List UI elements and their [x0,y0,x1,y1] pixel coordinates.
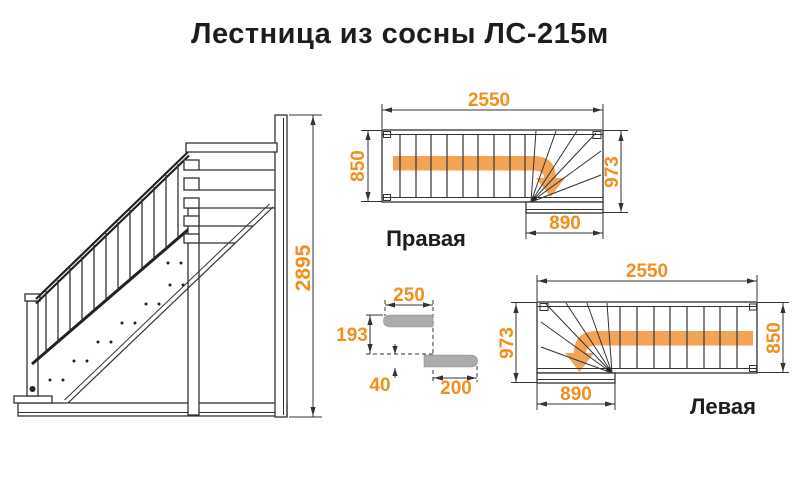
dim-tread-thickness-value: 40 [369,375,390,396]
dim-turn-width-value: 973 [602,156,623,188]
dim-length: 2550 [382,90,603,129]
upper-tread-section [384,315,434,327]
dim-length-value: 2550 [626,261,668,282]
dim-tread-run-value: 200 [440,378,472,399]
lower-tread-section [424,355,478,367]
dim-total-height: 2895 [289,115,322,417]
landing-outline [526,202,603,213]
side-elevation-view: 2895 [14,115,322,417]
dim-turn-width: 973 [497,303,537,384]
dim-turn-width-value: 973 [497,327,518,359]
drawing-canvas: 2895 [0,0,800,484]
dim-tread-depth-value: 250 [393,285,425,306]
dim-landing-width-value: 890 [560,384,592,405]
dim-tread-run: 200 [433,375,477,399]
floor-base [18,403,287,416]
dim-turn-width: 973 [602,131,628,213]
staircase-drawing-page: Лестница из сосны ЛС-215м [0,0,800,484]
dim-landing-width: 890 [537,383,615,410]
step-detail-view: 250 193 40 200 [336,285,477,399]
dim-flight-width-value: 850 [764,322,785,354]
newel-screw-dot [30,386,36,392]
dim-riser-height-value: 193 [336,325,368,346]
dim-riser-height: 193 [336,315,372,354]
dim-tread-depth: 250 [385,285,433,308]
stringer-screw-dots [49,262,185,382]
newel-post [27,301,38,396]
dim-length: 2550 [537,261,757,301]
dim-length-value: 2550 [468,90,510,111]
dim-flight-width: 850 [757,303,789,374]
dim-landing-width: 890 [526,213,603,239]
dim-flight-width: 850 [348,131,382,202]
newel-base-board [14,396,52,403]
dim-height-value: 2895 [292,244,315,291]
plan-left-label: Левая [690,394,756,419]
stringer-edge [32,222,197,364]
dim-tread-thickness: 40 [369,344,397,396]
plan-view-right: 2550 850 973 [348,90,628,251]
landing-outline [537,373,615,383]
upper-floor-post [275,115,287,417]
dim-landing-width-value: 890 [549,213,581,234]
apron-diagonal [65,204,274,403]
balusters [46,164,178,352]
plan-view-left: 2550 973 850 [497,261,789,419]
plan-right-label: Правая [386,226,466,251]
landing-platform-board [186,143,277,152]
dim-flight-width-value: 850 [348,150,369,182]
